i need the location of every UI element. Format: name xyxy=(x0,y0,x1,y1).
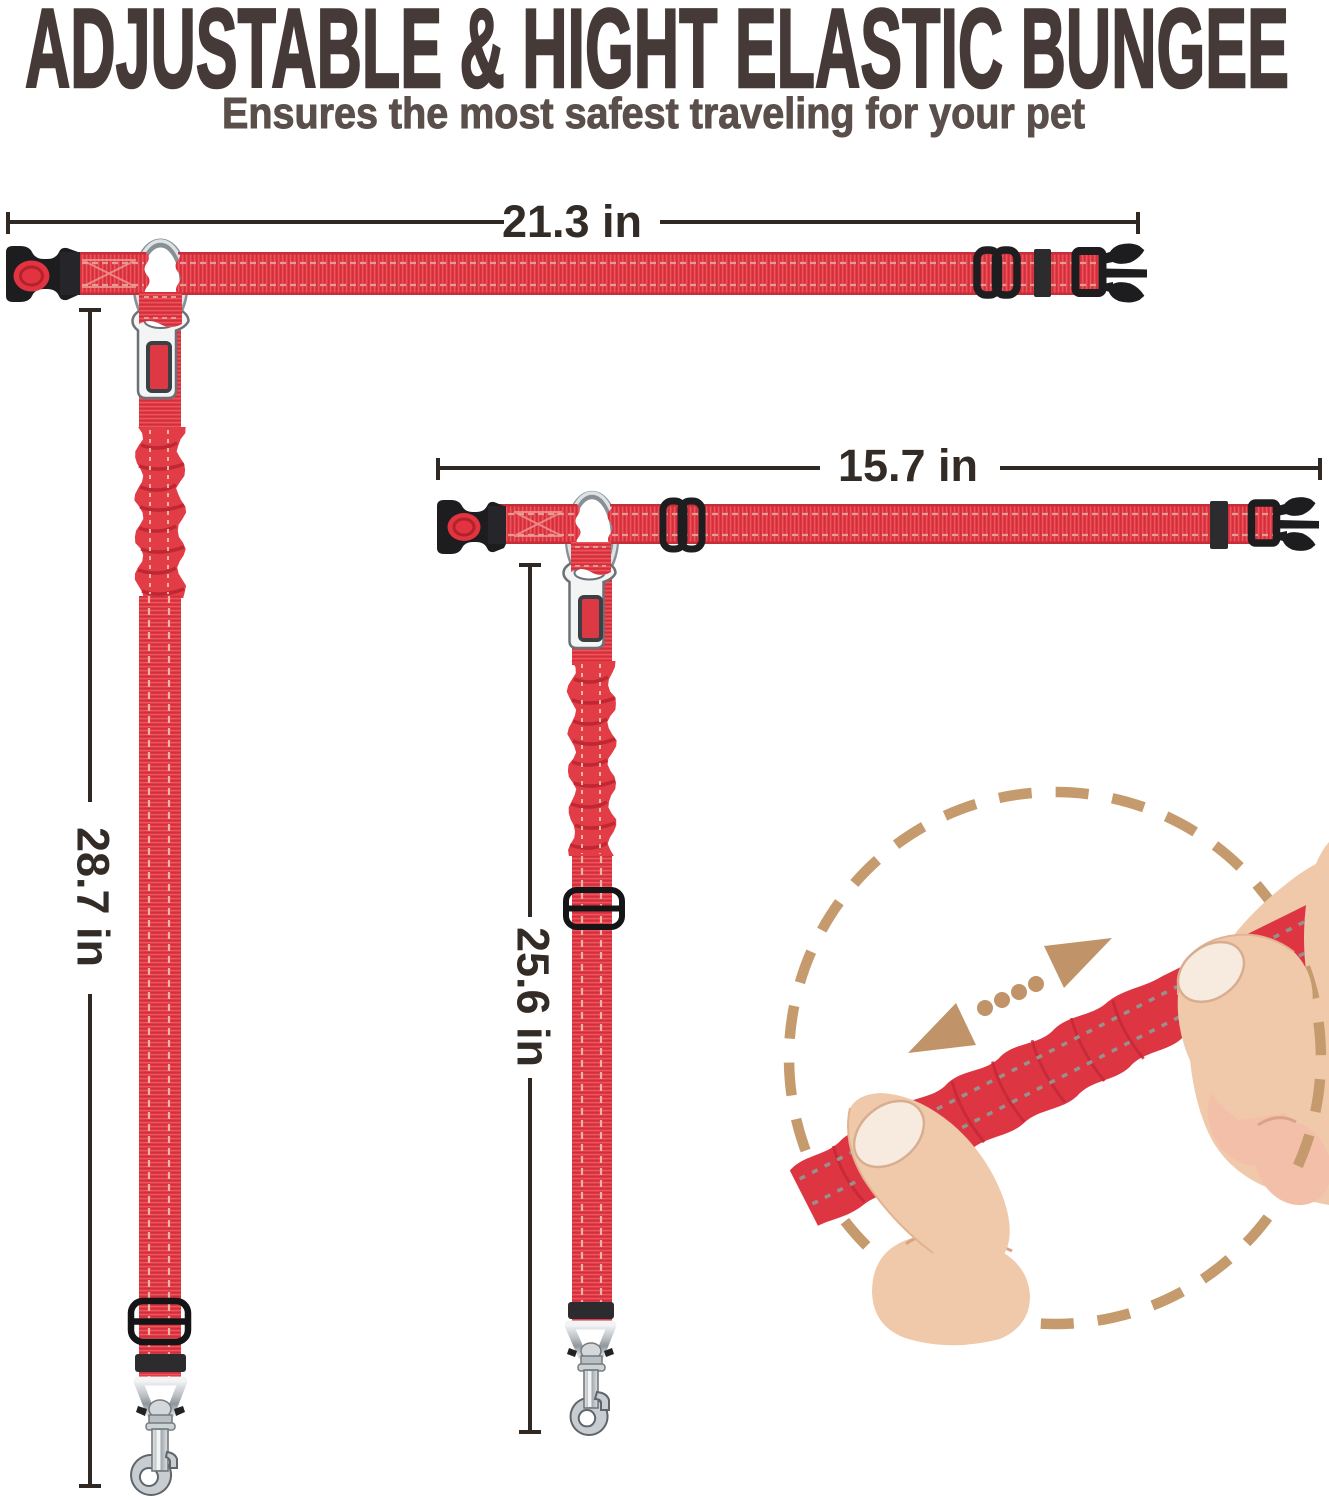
svg-text:21.3 in: 21.3 in xyxy=(502,196,642,247)
svg-text:25.6 in: 25.6 in xyxy=(508,927,559,1067)
svg-text:Ensures the most safest travel: Ensures the most safest traveling for yo… xyxy=(222,89,1085,138)
svg-text:15.7 in: 15.7 in xyxy=(838,440,978,491)
svg-text:28.7 in: 28.7 in xyxy=(68,827,119,967)
